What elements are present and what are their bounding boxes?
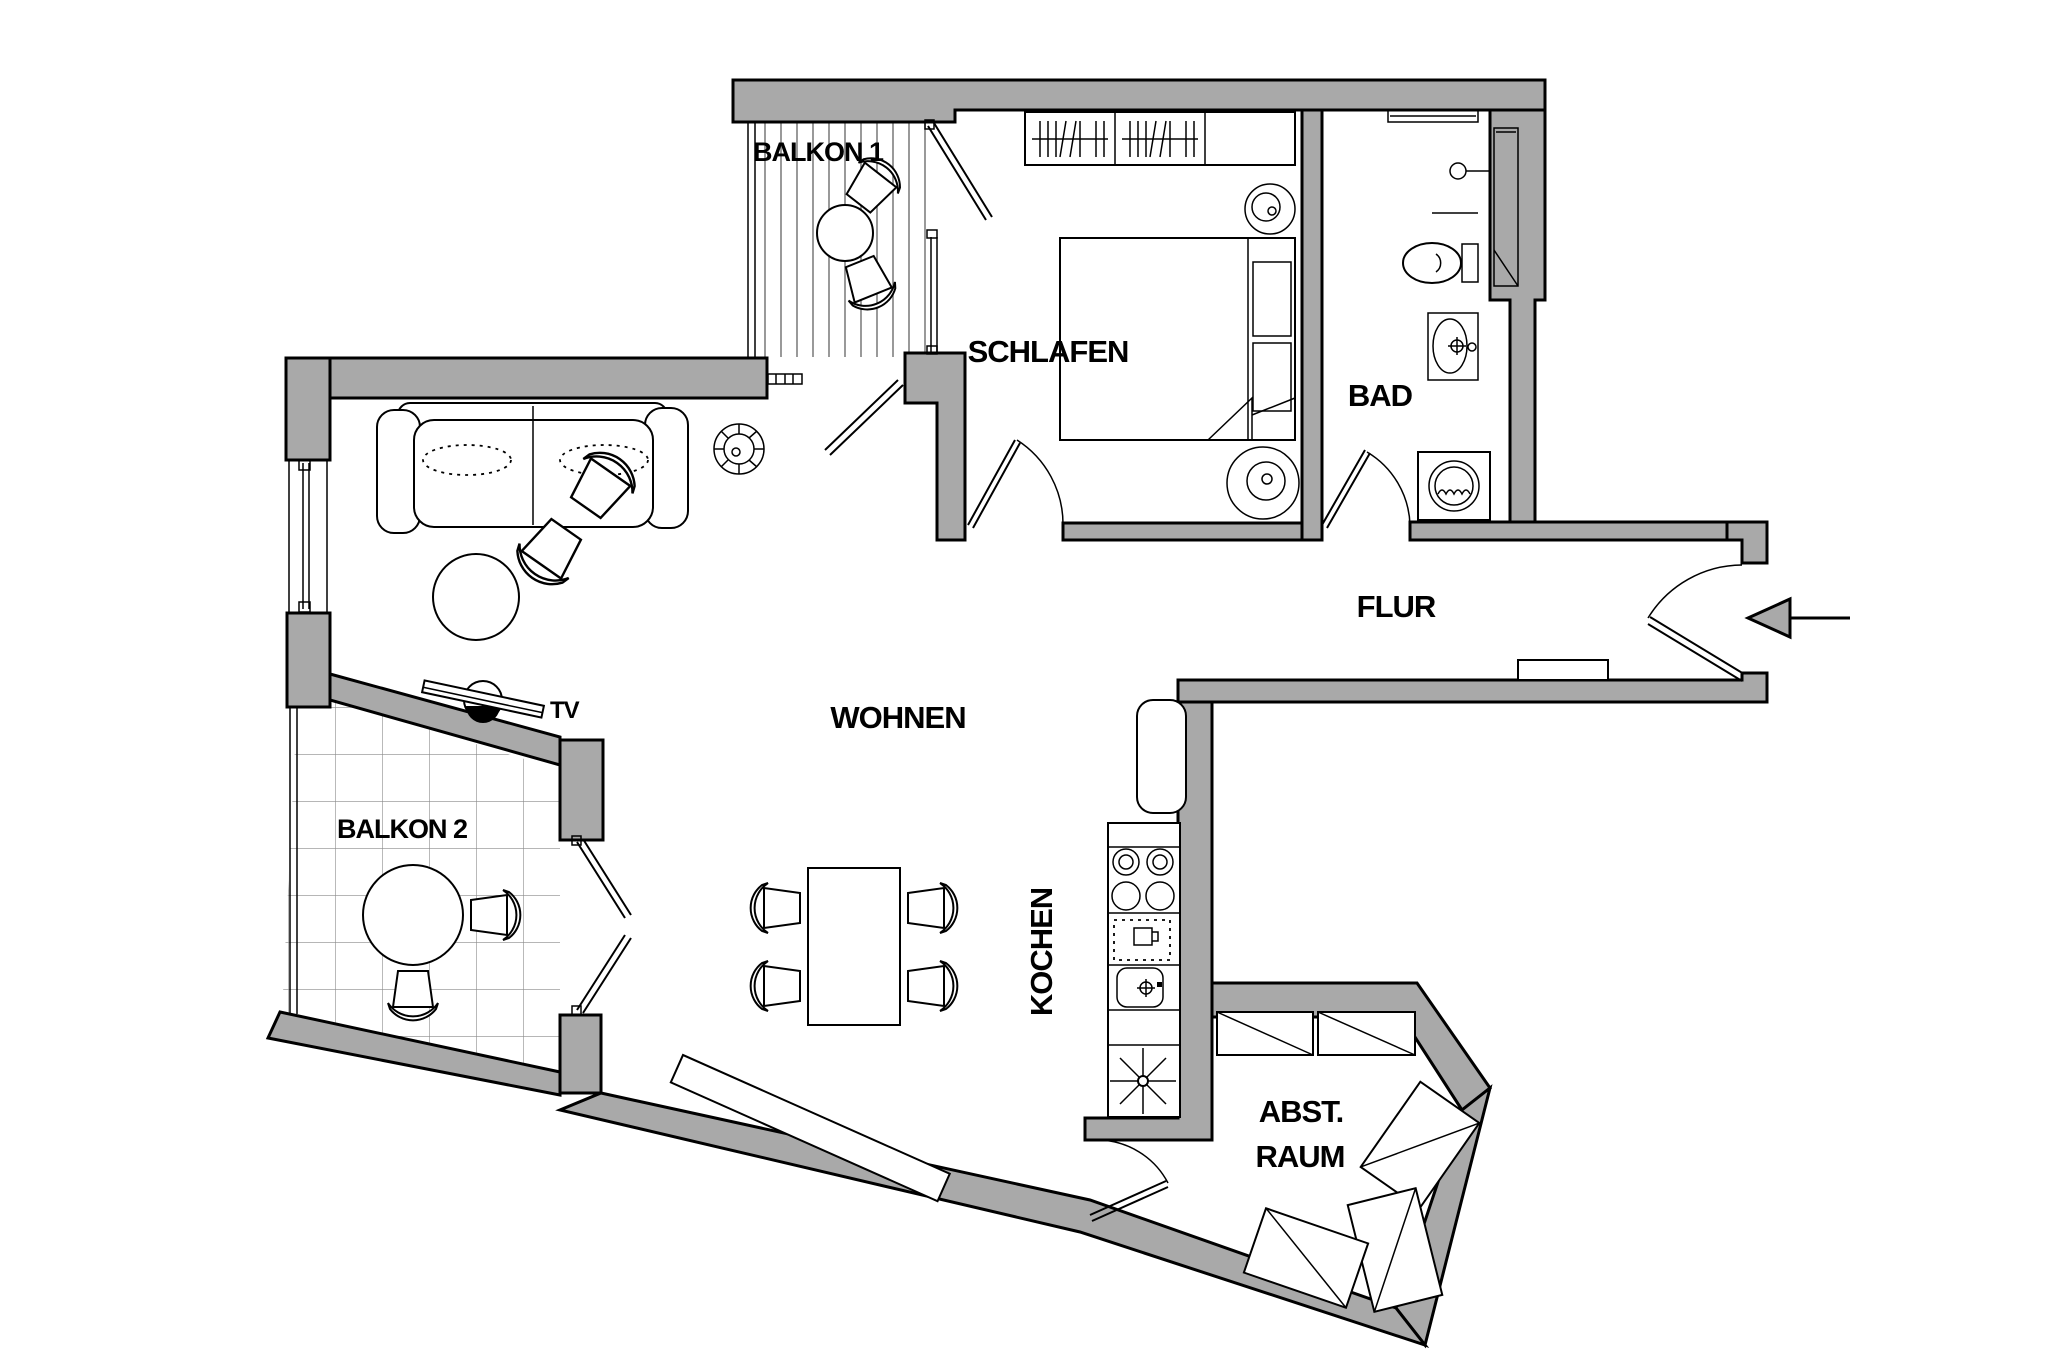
abstellraum-door [1090, 1140, 1168, 1221]
label-kochen: KOCHEN [1024, 888, 1059, 1016]
dining-chair-r2 [908, 961, 957, 1011]
entrance-arrow-icon [1748, 599, 1850, 637]
floor-plan-svg: BALKON 1 SCHLAFEN BAD FLUR WOHNEN KOCHEN… [0, 0, 2048, 1365]
washing-machine [1418, 452, 1490, 520]
balkon2-table [363, 865, 463, 965]
label-abst-line2: RAUM [1256, 1139, 1345, 1174]
label-balkon2: BALKON 2 [337, 814, 467, 844]
bad-fixtures [1388, 110, 1490, 520]
dining-chair-l2 [751, 961, 800, 1011]
plant-wreath [714, 424, 764, 474]
balkon1-railing [927, 230, 937, 354]
wall-west-upper-block [286, 358, 330, 460]
dining-chair-l1 [751, 883, 800, 933]
shelf-1 [1217, 1012, 1313, 1055]
balkon1-threshold-window [768, 374, 802, 384]
wall-balkon2-door-south-block [560, 1015, 601, 1093]
label-wohnen: WOHNEN [830, 700, 965, 735]
wardrobe [1025, 112, 1295, 165]
schlafen-door [968, 440, 1063, 528]
dining-set [751, 868, 958, 1025]
fridge [1137, 700, 1186, 813]
coffee-table [433, 554, 519, 640]
wall-hook [1450, 163, 1490, 179]
label-tv: TV [550, 697, 580, 724]
wall-flur-north-right [1410, 522, 1727, 540]
balkon1-table [817, 205, 873, 261]
bath-shelf [1388, 110, 1478, 122]
shelf-2 [1318, 1012, 1415, 1055]
plant-bottom [1227, 447, 1299, 519]
label-bad: BAD [1348, 378, 1413, 413]
balkon1-wohnen-door [825, 380, 903, 455]
entrance-door [1648, 565, 1744, 681]
balkon2-french-doors [572, 836, 631, 1015]
balkon1-furniture [817, 149, 909, 317]
wall-balkon2-door-north-block [560, 740, 603, 840]
doormat [1518, 660, 1608, 680]
floor-plan-page: BALKON 1 SCHLAFEN BAD FLUR WOHNEN KOCHEN… [0, 0, 2048, 1365]
label-flur: FLUR [1357, 589, 1436, 624]
kitchen-counter [1108, 823, 1180, 1117]
bad-door [1322, 450, 1410, 528]
west-window [289, 460, 327, 612]
wall-flur-north-left [1063, 523, 1302, 540]
wall-flur-south [1178, 673, 1767, 702]
wall-entrance-top-block [1727, 522, 1767, 563]
toilet [1403, 243, 1478, 283]
wall-wohnen-north [286, 358, 767, 398]
wall-schlafen-west [905, 353, 965, 540]
wall-schlafen-bad [1302, 110, 1322, 540]
schlafen-balkon-door [925, 120, 992, 220]
sofa [377, 403, 688, 533]
label-balkon1: BALKON 1 [753, 137, 884, 167]
plant-top [1245, 184, 1295, 234]
label-schlafen: SCHLAFEN [968, 334, 1129, 369]
label-abst-line1: ABST. [1259, 1094, 1344, 1129]
schlafen-furniture [1025, 112, 1299, 519]
dining-chair-r1 [908, 883, 957, 933]
wall-west-mid-block [287, 613, 330, 707]
bath-sink [1428, 313, 1478, 380]
kitchen [1108, 700, 1186, 1117]
